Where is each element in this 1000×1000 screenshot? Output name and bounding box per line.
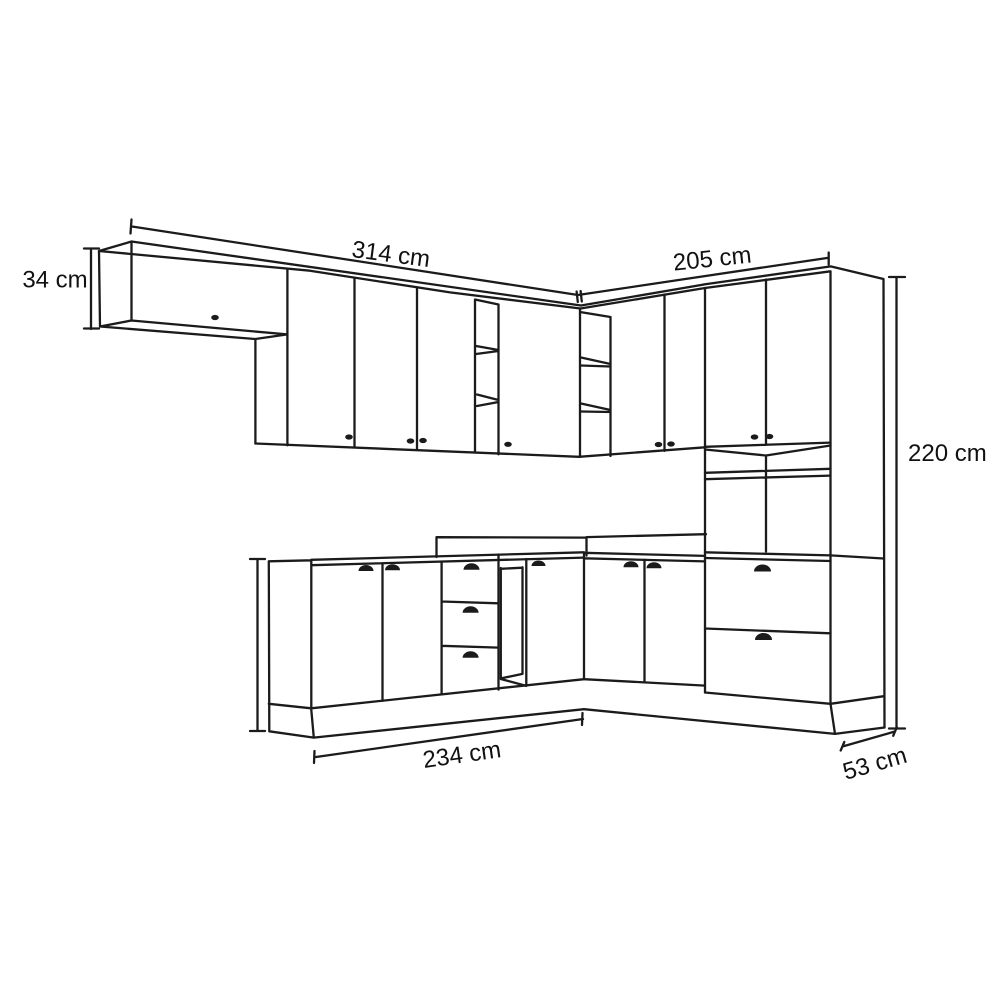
svg-text:34 cm: 34 cm bbox=[22, 267, 87, 294]
svg-text:220 cm: 220 cm bbox=[908, 440, 987, 467]
